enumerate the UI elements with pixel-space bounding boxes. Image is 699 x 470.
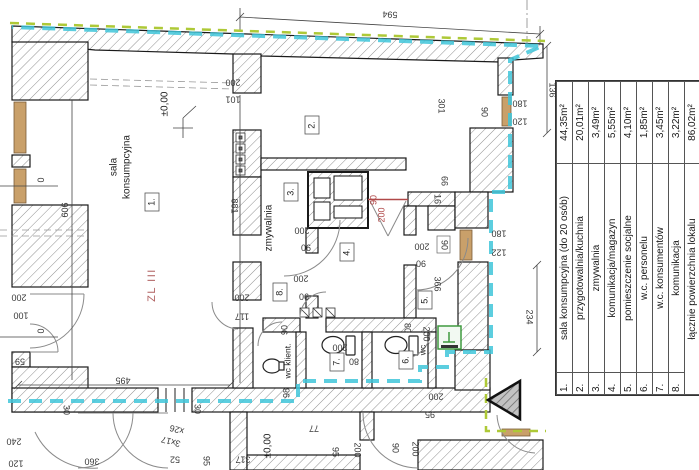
legend-row: 3. zmywalnia 3,49m² bbox=[589, 82, 605, 395]
dimension-label: 90 bbox=[440, 240, 450, 250]
room-number-label: 7. bbox=[331, 358, 341, 366]
dimension-label: 117 bbox=[235, 312, 249, 322]
dimension-label: 0 bbox=[36, 177, 46, 182]
dimension-label: 100 bbox=[13, 311, 28, 321]
dimension-label: 200 bbox=[225, 78, 240, 88]
dimension-label: 200 bbox=[234, 293, 249, 303]
room-name-label: zmywalnia bbox=[264, 204, 275, 251]
dimension-label: 101 bbox=[225, 95, 240, 105]
dimension-label: 240 bbox=[6, 437, 21, 447]
dimension-label: 881 bbox=[230, 198, 240, 213]
room-number-label: 1. bbox=[146, 198, 156, 206]
legend-room-area: 5,55m² bbox=[605, 82, 621, 164]
dimension-label: 200 bbox=[332, 343, 347, 353]
dimension-label: 200 bbox=[422, 326, 432, 341]
dimension-label: 200 bbox=[428, 392, 443, 402]
dimension-label: 317 bbox=[235, 455, 250, 465]
legend-room-name: sala konsumpcyjna (do 20 osób) bbox=[557, 164, 573, 373]
legend-row: łącznie powierzchnia lokalu 86,02m² bbox=[685, 82, 699, 395]
dimension-label: 180 bbox=[491, 229, 506, 239]
legend-room-area: 3,45m² bbox=[653, 82, 669, 164]
entrance-triangle-icon bbox=[488, 381, 520, 419]
dimension-label: 120 bbox=[512, 117, 527, 127]
legend-room-area: 86,02m² bbox=[685, 82, 699, 164]
dimension-label: 95 bbox=[331, 447, 341, 457]
room-name-label: konsumpcyjna bbox=[122, 135, 133, 199]
room-name-label: ZL III bbox=[146, 268, 158, 302]
room-number-label: 2. bbox=[306, 121, 316, 129]
legend-room-name: komunikacja bbox=[669, 164, 685, 373]
dimension-label: 360 bbox=[84, 457, 99, 467]
sink-counter bbox=[308, 172, 368, 228]
dimension-label: 52 bbox=[170, 455, 180, 465]
green-panel-icon bbox=[438, 326, 461, 349]
legend-room-name: zmywalnia bbox=[589, 164, 605, 373]
dimension-label: 200 bbox=[293, 274, 308, 284]
legend-room-area: 1,85m² bbox=[637, 82, 653, 164]
legend-room-area: 4,10m² bbox=[621, 82, 637, 164]
dimension-label: 200 bbox=[376, 207, 386, 222]
legend-room-name: komunikacja/magazyn bbox=[605, 164, 621, 373]
room-name-label: ±0,00 bbox=[160, 91, 171, 116]
legend-row: 4. komunikacja/magazyn 5,55m² bbox=[605, 82, 621, 395]
room-number-label: 3. bbox=[285, 188, 295, 196]
dimension-label: 66 bbox=[440, 176, 450, 186]
dimension-label: 80 bbox=[349, 357, 359, 367]
legend-room-area: 44,35m² bbox=[557, 82, 573, 164]
dimension-label: 90 bbox=[368, 195, 378, 205]
room-name-label: wc klient. bbox=[282, 344, 292, 380]
dimension-label: 95 bbox=[202, 456, 212, 466]
legend-row: 1. sala konsumpcyjna (do 20 osób) 44,35m… bbox=[557, 82, 573, 395]
dimension-label: 90 bbox=[279, 325, 289, 335]
legend-room-area: 3,49m² bbox=[589, 82, 605, 164]
dimension-label: 16 bbox=[433, 194, 443, 204]
legend-room-number: 1. bbox=[557, 373, 573, 395]
dimension-label: 200 bbox=[353, 442, 363, 457]
dimension-label: 234 bbox=[525, 309, 535, 324]
legend-table: 1. sala konsumpcyjna (do 20 osób) 44,35m… bbox=[556, 82, 694, 395]
dimension-label: 200 bbox=[414, 242, 429, 252]
dimension-label: 90 bbox=[299, 292, 309, 302]
dimension-label: 200 bbox=[11, 293, 26, 303]
dimension-label: 90 bbox=[301, 243, 311, 253]
legend-row: 6. w.c. personelu 1,85m² bbox=[637, 82, 653, 395]
legend-room-name: w.c. konsumentów bbox=[653, 164, 669, 373]
dimension-label: 90 bbox=[391, 443, 401, 453]
room-name-label: sala bbox=[109, 157, 120, 176]
legend-room-number: 3. bbox=[589, 373, 605, 395]
legend-room-number: 5. bbox=[621, 373, 637, 395]
legend-room-name: pomieszczenie socjalne bbox=[621, 164, 637, 373]
dimension-label: 77 bbox=[309, 424, 319, 434]
legend-room-name: przygotowalnia/kuchnia bbox=[573, 164, 589, 373]
legend-row: 5. pomieszczenie socjalne 4,10m² bbox=[621, 82, 637, 395]
washbasin-icon bbox=[263, 359, 284, 373]
legend-row: 8. komunikacja 3,22m² bbox=[669, 82, 685, 395]
dimension-label: 30 bbox=[193, 404, 203, 414]
legend-room-name: w.c. personelu bbox=[637, 164, 653, 373]
dimension-label: 366 bbox=[433, 276, 443, 291]
legend-room-area: 20,01m² bbox=[573, 82, 589, 164]
floor-plan-page: { "legend": { "rows": [ {"num":"1.","nam… bbox=[0, 0, 699, 470]
room-number-label: 4. bbox=[341, 248, 351, 256]
dimension-label: 95 bbox=[425, 410, 435, 420]
dimension-label: 495 bbox=[115, 376, 130, 386]
dimension-label: 98 bbox=[281, 388, 291, 398]
legend-row: 2. przygotowalnia/kuchnia 20,01m² bbox=[573, 82, 589, 395]
legend-room-number: 2. bbox=[573, 373, 589, 395]
dimension-label: 59 bbox=[15, 357, 25, 367]
legend-room-name: łącznie powierzchnia lokalu bbox=[685, 164, 699, 395]
room-number-label: 6. bbox=[400, 356, 410, 364]
dimension-label: 90 bbox=[480, 107, 490, 117]
dimension-label: 30 bbox=[62, 405, 72, 415]
dimension-label: x26 bbox=[169, 423, 186, 436]
room-name-label: ±0,00 bbox=[263, 433, 274, 458]
legend-room-number: 8. bbox=[669, 373, 685, 395]
dimension-label: 909 bbox=[60, 202, 70, 217]
dimension-label: 301 bbox=[437, 98, 447, 113]
dimension-label: 180 bbox=[512, 99, 527, 109]
dimension-label: 120 bbox=[8, 459, 23, 469]
dimension-label: 122 bbox=[491, 248, 506, 258]
legend-room-number: 6. bbox=[637, 373, 653, 395]
dimension-label: 594 bbox=[382, 9, 398, 20]
legend-rows: 1. sala konsumpcyjna (do 20 osób) 44,35m… bbox=[557, 82, 699, 395]
legend-room-area: 3,22m² bbox=[669, 82, 685, 164]
dimension-label: 200 bbox=[294, 226, 309, 236]
legend-table-rotated: 1. sala konsumpcyjna (do 20 osób) 44,35m… bbox=[556, 82, 694, 395]
legend-room-number: 4. bbox=[605, 373, 621, 395]
legend-room-number: 7. bbox=[653, 373, 669, 395]
dimension-label: 200 bbox=[411, 441, 421, 456]
dimension-label: 80 bbox=[403, 323, 413, 333]
room-number-label: 8. bbox=[274, 288, 284, 296]
legend-row: 7. w.c. konsumentów 3,45m² bbox=[653, 82, 669, 395]
dimension-label: 90 bbox=[416, 259, 426, 269]
room-name-label: wc bbox=[417, 344, 427, 356]
room-number-label: 5. bbox=[419, 296, 429, 304]
dimension-label: 0 bbox=[36, 328, 46, 333]
dimension-label: 3x17 bbox=[160, 434, 181, 449]
